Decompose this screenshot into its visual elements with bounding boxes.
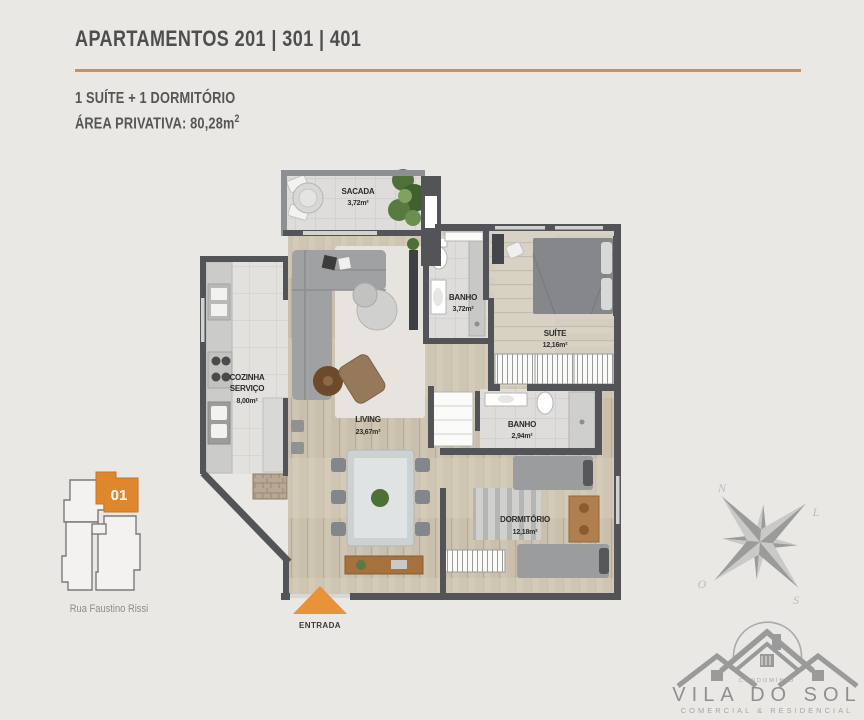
entrance-label: ENTRADA [299,621,341,630]
side-table-decor [323,376,333,386]
dorm-bed-2 [517,544,609,578]
label-sacada-area: 3,72m² [348,200,370,207]
private-area-text: ÁREA PRIVATIVA: 80,28m2 [75,113,240,133]
hall-cabinet [433,392,473,446]
label-banho2: BANHO [508,420,536,429]
label-dormitorio: DORMITÓRIO [500,515,550,524]
compass-l: L [812,505,820,519]
suite-wardrobe [495,354,613,384]
label-living-area: 23,67m² [356,429,382,436]
private-area-value: ÁREA PRIVATIVA: 80,28m [75,115,235,132]
label-sacada: SACADA [341,187,374,196]
unit-config-text: 1 SUÍTE + 1 DORMITÓRIO [75,90,235,108]
suite-bed [533,236,618,316]
vila-do-sol-logo: CONDOMÍNIO VILA DO SOL COMERCIAL & RESID… [670,612,864,717]
private-area-sup: 2 [235,113,240,125]
building-key-map: 01 [52,460,162,602]
dining-set [331,450,430,546]
logo-houses-icon [678,622,857,686]
dorm-dresser [569,496,599,542]
coffee-table-small [353,283,377,307]
compass-rose-icon: N L O S [692,472,828,612]
tv-panel [409,250,418,330]
label-banho2-area: 2,94m² [512,433,534,440]
compass-s: S [793,593,799,607]
label-dormitorio-area: 12,18m² [513,529,539,536]
dorm-bed-1 [513,456,593,490]
compass-o: O [698,577,707,591]
logo-tagline: COMERCIAL & RESIDENCIAL [681,706,854,715]
unit-number: 01 [111,487,128,504]
dorm-closet [445,550,505,572]
service-grill [253,474,287,499]
label-cozinha-1: COZINHA [229,373,264,382]
logo-name: VILA DO SOL [672,684,861,706]
floor-plan: SACADA 3,72m² BANHO 3,72m² SUÍTE 12,16m²… [195,158,635,640]
logo-condominio: CONDOMÍNIO [739,677,795,684]
label-cozinha-area: 8,00m² [237,398,259,405]
label-cozinha-2: SERVIÇO [230,384,264,393]
label-suite-area: 12,16m² [543,342,569,349]
label-living: LIVING [355,415,380,424]
accent-rule [75,69,801,72]
kitchen-counter [206,262,232,473]
label-banho1-area: 3,72m² [453,306,475,313]
street-label: Rua Faustino Rissi [54,603,165,615]
compass-n: N [717,481,727,495]
label-banho1: BANHO [449,293,477,302]
sideboard [345,556,423,574]
label-suite: SUÍTE [544,329,567,338]
page-title: APARTAMENTOS 201 | 301 | 401 [75,26,361,52]
plant-small [407,238,419,250]
